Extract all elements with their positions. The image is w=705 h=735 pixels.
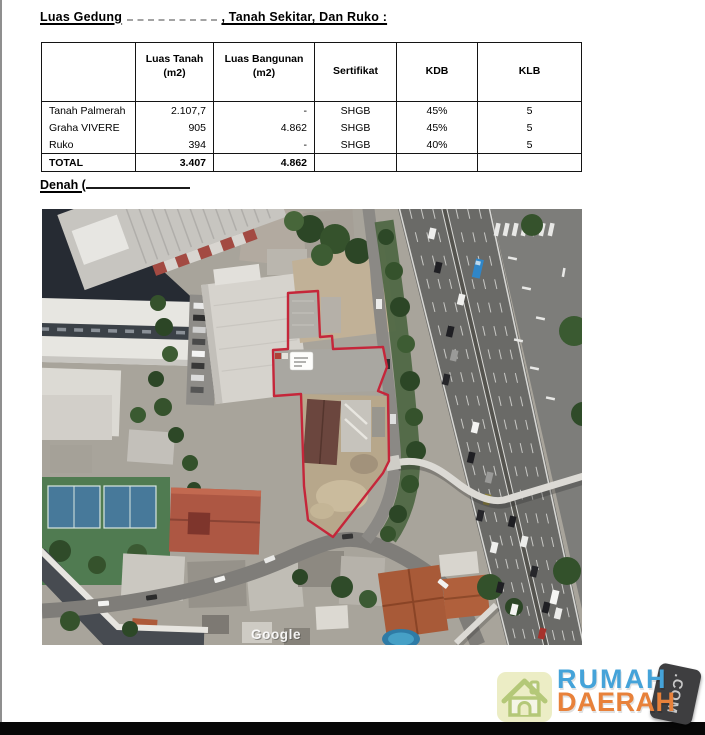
table-row-total: TOTAL 3.407 4.862 [42,154,582,172]
table-cell: Tanah Palmerah [42,102,136,120]
small-building [321,297,341,333]
table-row-ruko: Ruko 394 - SHGB 40% 5 [42,136,582,154]
brand-word-bottom: DAERAH [557,689,676,715]
table-cell: SHGB [315,119,397,136]
bottom-black-bar [0,722,705,735]
title-lead: Luas Gedung [40,10,122,24]
denah-redacted-blank [86,175,190,189]
table-row-tanah-palmerah: Tanah Palmerah 2.107,7 - SHGB 45% 5 [42,102,582,120]
table-cell: - [214,136,315,154]
col-header-empty [42,43,136,102]
table-cell: 5 [478,102,582,120]
table-cell [397,154,478,172]
table-cell: 45% [397,102,478,120]
table-cell: SHGB [315,102,397,120]
table-cell: 5 [478,136,582,154]
table-cell: 45% [397,119,478,136]
red-roof-building [169,487,261,554]
area-table: Luas Tanah(m2) Luas Bangunan(m2) Sertifi… [41,42,582,172]
table-cell: 4.862 [214,154,315,172]
document-page: { "document": { "title": { "lead": "Luas… [0,0,705,735]
table-cell: 2.107,7 [136,102,214,120]
table-cell: 394 [136,136,214,154]
page-title: Luas Gedung , Tanah Sekitar, Dan Ruko : [40,7,387,24]
col-header-sertifikat: Sertifikat [315,43,397,102]
table-cell: Graha VIVERE [42,119,136,136]
table-cell: TOTAL [42,154,136,172]
col-header-klb: KLB [478,43,582,102]
table-cell: Ruko [42,136,136,154]
table-cell: 40% [397,136,478,154]
col-header-kdb: KDB [397,43,478,102]
brand-words: RUMAH DAERAH [557,666,676,715]
scan-left-edge-line [0,0,2,735]
table-cell: 3.407 [136,154,214,172]
site-map-satellite: Google Google [42,209,582,645]
denah-text: Denah ( [40,178,86,192]
table-cell [315,154,397,172]
title-tail: , Tanah Sekitar, Dan Ruko : [221,10,387,24]
google-watermark: Google [251,627,301,642]
table-cell: SHGB [315,136,397,154]
table-row-graha-vivere: Graha VIVERE 905 4.862 SHGB 45% 5 [42,119,582,136]
table-cell: 4.862 [214,119,315,136]
table-cell: 5 [478,119,582,136]
denah-section-label: Denah ( [40,175,190,192]
col-header-luas-bangunan: Luas Bangunan(m2) [214,43,315,102]
house-icon [497,672,552,722]
map-label-box [290,352,313,370]
area-table-header: Luas Tanah(m2) Luas Bangunan(m2) Sertifi… [42,43,582,102]
title-redacted-blank [127,7,217,21]
table-cell: - [214,102,315,120]
table-cell [478,154,582,172]
col-header-luas-tanah: Luas Tanah(m2) [136,43,214,102]
table-cell: 905 [136,119,214,136]
watermark-logo: .COM RUMAH DAERAH [497,665,705,723]
